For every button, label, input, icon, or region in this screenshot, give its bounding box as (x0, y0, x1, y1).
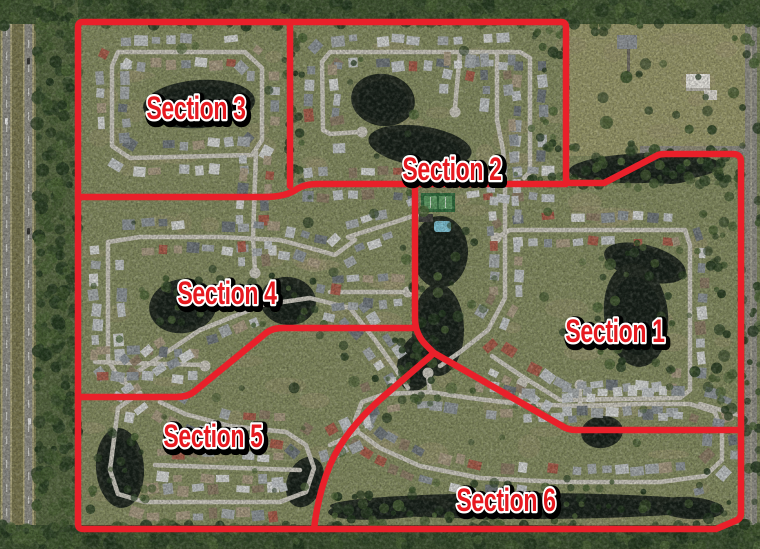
aerial-photo: Section 1 Section 1 Section 2 Section 2 … (0, 0, 760, 549)
section-5-label-text: Section 5 (163, 418, 262, 454)
section-1-label: Section 1 Section 1 (565, 313, 666, 351)
section-2-label: Section 2 Section 2 (402, 151, 503, 189)
section-2-label-text: Section 2 (402, 151, 501, 187)
section-1-label-text: Section 1 (565, 313, 664, 349)
section-5-label: Section 5 Section 5 (163, 418, 264, 456)
section-6-label: Section 6 Section 6 (456, 482, 557, 520)
section-6-label-text: Section 6 (456, 482, 555, 518)
section-3-label-text: Section 3 (146, 90, 245, 126)
section-4-label-text: Section 4 (177, 275, 277, 311)
section-3-label: Section 3 Section 3 (146, 90, 247, 128)
aerial-sections-map: Section 1 Section 1 Section 2 Section 2 … (0, 0, 760, 549)
photo-grain-light (0, 0, 760, 549)
section-4-label: Section 4 Section 4 (177, 275, 279, 313)
